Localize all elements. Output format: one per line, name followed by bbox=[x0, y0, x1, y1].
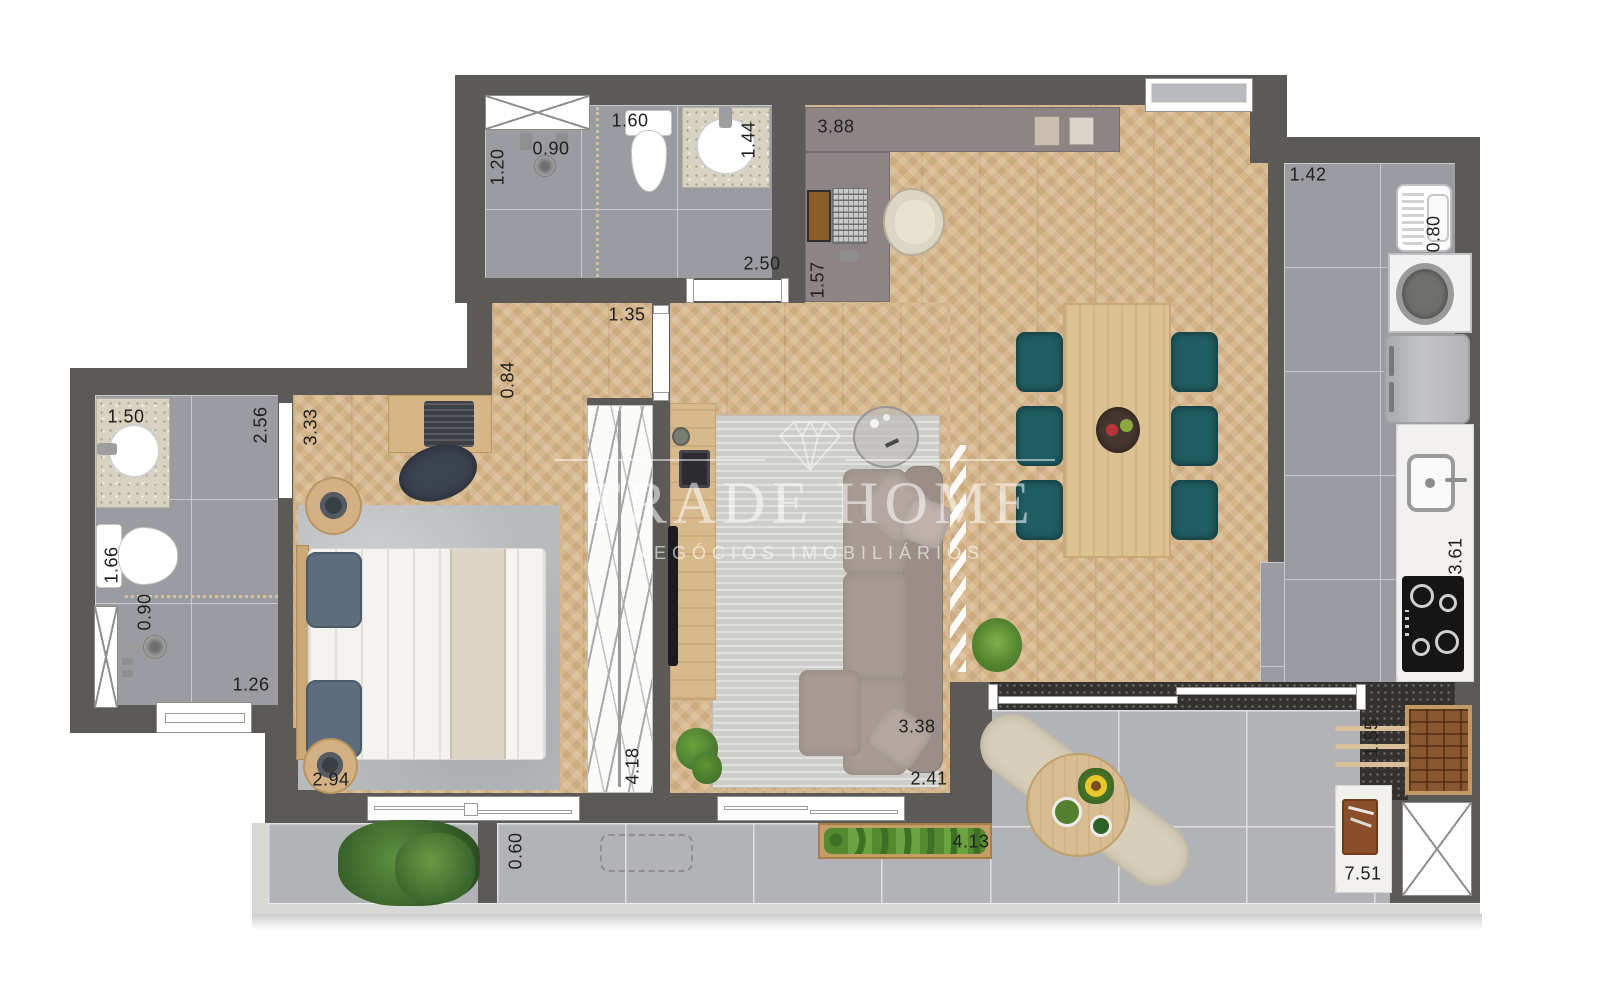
shaft-box-left bbox=[94, 606, 118, 708]
bed-pillow bbox=[306, 552, 362, 628]
dimension-label: 1.50 bbox=[107, 407, 144, 428]
living-window bbox=[717, 796, 905, 821]
dining-chair bbox=[1016, 406, 1063, 466]
fruit-green bbox=[1120, 419, 1133, 432]
cutting-board bbox=[1342, 799, 1378, 855]
dimension-label: 3.38 bbox=[898, 717, 935, 738]
burner bbox=[1435, 630, 1459, 654]
bath-social-door-jamb bbox=[686, 278, 694, 303]
window-latch bbox=[464, 803, 478, 816]
shower-handle bbox=[122, 658, 133, 665]
grill bbox=[1405, 705, 1472, 795]
dimension-label: 1.66 bbox=[102, 546, 123, 583]
fruit-bowl bbox=[1096, 407, 1140, 453]
laptop-keyboard bbox=[832, 188, 868, 244]
washing-machine bbox=[1388, 253, 1472, 333]
knife bbox=[1350, 817, 1372, 827]
floor-plan: 1.20 0.90 1.60 1.44 2.50 3.88 1.57 1.35 … bbox=[0, 0, 1600, 1002]
bush bbox=[395, 833, 475, 903]
sliding-door-panel-1 bbox=[998, 696, 1178, 704]
burner bbox=[1439, 594, 1457, 612]
window-sash bbox=[165, 713, 245, 723]
fridge-handle bbox=[1389, 382, 1394, 412]
bath-social-door-jamb bbox=[781, 278, 789, 303]
dimension-label: 0.90 bbox=[532, 139, 569, 160]
balcony-railing-left bbox=[252, 823, 268, 909]
wall-hall-west bbox=[467, 300, 492, 375]
closet-rail bbox=[618, 411, 621, 787]
plant bbox=[972, 618, 1022, 672]
dimension-label: 2.56 bbox=[251, 406, 272, 443]
fridge bbox=[1384, 334, 1470, 424]
dimension-label: 1.42 bbox=[1289, 165, 1326, 186]
dimension-label: 0.90 bbox=[135, 593, 156, 630]
desk-accessory bbox=[840, 250, 858, 262]
living-door-jamb bbox=[653, 305, 669, 314]
shower-head-icon bbox=[143, 635, 167, 659]
tank-drainboard bbox=[1402, 191, 1424, 245]
kitchen-faucet bbox=[1445, 478, 1467, 482]
dimension-label: 4.18 bbox=[623, 747, 644, 784]
wall-balcony-divider bbox=[478, 823, 497, 905]
dimension-label: 4.13 bbox=[952, 832, 989, 853]
closet-wardrobe bbox=[587, 405, 653, 793]
dining-chair bbox=[1016, 332, 1063, 392]
knife bbox=[1348, 806, 1374, 815]
window-sash bbox=[472, 810, 572, 814]
table-decor bbox=[883, 414, 890, 421]
dimension-label: 2.94 bbox=[312, 770, 349, 791]
dimension-label: 1.44 bbox=[739, 121, 760, 158]
bed-duvet-band bbox=[450, 549, 506, 759]
artwork bbox=[1069, 117, 1094, 145]
living-door-jamb bbox=[653, 392, 669, 401]
fridge-handle bbox=[1389, 346, 1394, 376]
dimension-label: 7.51 bbox=[1344, 864, 1381, 885]
sliding-door-panel-2 bbox=[1176, 687, 1358, 695]
balcony-shadow bbox=[252, 914, 1482, 930]
laptop-screen bbox=[807, 190, 831, 242]
dimension-label: 3.61 bbox=[1446, 537, 1467, 574]
bedroom-laptop bbox=[424, 401, 474, 447]
table-decor bbox=[870, 419, 879, 428]
dimension-label: 0.84 bbox=[498, 361, 519, 398]
office-chair-seat bbox=[895, 200, 935, 244]
dimension-label: 2.50 bbox=[743, 254, 780, 275]
shower-glass-line bbox=[596, 107, 599, 277]
faucet-icon bbox=[97, 443, 117, 455]
fruit-red bbox=[1106, 424, 1118, 436]
kitchen-sink bbox=[1407, 454, 1455, 512]
wall-kitchen-top bbox=[1250, 137, 1480, 163]
burner bbox=[1410, 584, 1434, 608]
shaft-box-bottom-right bbox=[1402, 802, 1472, 896]
sliding-door-jamb-right bbox=[1356, 684, 1366, 710]
artwork bbox=[1034, 116, 1060, 146]
dimension-label: 1.20 bbox=[488, 148, 509, 185]
wall-topleft-block-left bbox=[455, 75, 485, 303]
burner bbox=[1412, 638, 1430, 656]
cooktop-knobs bbox=[1405, 610, 1409, 636]
wall-kitchen-dining bbox=[1268, 137, 1284, 562]
dining-chair bbox=[1171, 332, 1218, 392]
sink-drain bbox=[1425, 478, 1435, 488]
shower-handle bbox=[122, 670, 133, 677]
dimension-label: 3.33 bbox=[301, 408, 322, 445]
dimension-label: 0.60 bbox=[506, 832, 527, 869]
washer-door bbox=[1396, 263, 1454, 325]
dimension-label: 1.57 bbox=[808, 261, 829, 298]
record-player bbox=[679, 450, 710, 488]
plant bbox=[692, 752, 722, 784]
bath-social-door-opening bbox=[690, 280, 785, 301]
skewer bbox=[1335, 762, 1409, 767]
window-sash bbox=[810, 810, 898, 814]
dining-chair bbox=[1171, 406, 1218, 466]
dining-window-glass bbox=[1151, 83, 1247, 103]
dimension-label: 0.80 bbox=[1424, 215, 1445, 252]
tv bbox=[668, 526, 678, 666]
bath-suite-window bbox=[156, 702, 252, 733]
dimension-label: 3.88 bbox=[817, 117, 854, 138]
dimension-label: 2.41 bbox=[910, 769, 947, 790]
dining-window bbox=[1145, 78, 1253, 112]
kitchen-floor-patch bbox=[1260, 562, 1284, 682]
dining-chair bbox=[1016, 480, 1063, 540]
wall-window-corner bbox=[1250, 75, 1287, 142]
future-furniture-outline bbox=[600, 834, 693, 872]
dimension-label: 1.55 bbox=[1362, 719, 1383, 756]
dimension-label: 1.35 bbox=[608, 305, 645, 326]
cooktop bbox=[1402, 576, 1464, 672]
dimension-label: 1.26 bbox=[232, 675, 269, 696]
ceiling-projection-dashes bbox=[950, 445, 966, 672]
shaft-box-top bbox=[485, 95, 590, 130]
sofa-chaise bbox=[799, 670, 861, 756]
window-sash bbox=[374, 806, 470, 810]
sliding-door-jamb-left bbox=[988, 684, 998, 710]
dining-chair bbox=[1171, 480, 1218, 540]
living-door-opening bbox=[653, 313, 669, 393]
wall-left bbox=[70, 368, 95, 733]
sofa-seat bbox=[843, 572, 907, 680]
wall-north-left-block bbox=[70, 368, 492, 395]
window-sash bbox=[724, 806, 808, 810]
nightstand-lamp bbox=[320, 492, 347, 519]
speaker bbox=[672, 427, 690, 446]
bedroom-window bbox=[367, 796, 580, 821]
dimension-label: 1.60 bbox=[611, 111, 648, 132]
bath-suite-door-opening bbox=[279, 403, 292, 498]
plate-green bbox=[1090, 815, 1112, 837]
faucet-icon bbox=[719, 106, 732, 128]
shower-handle bbox=[520, 133, 532, 150]
plate-green bbox=[1052, 797, 1082, 827]
sunflower bbox=[1085, 775, 1107, 797]
